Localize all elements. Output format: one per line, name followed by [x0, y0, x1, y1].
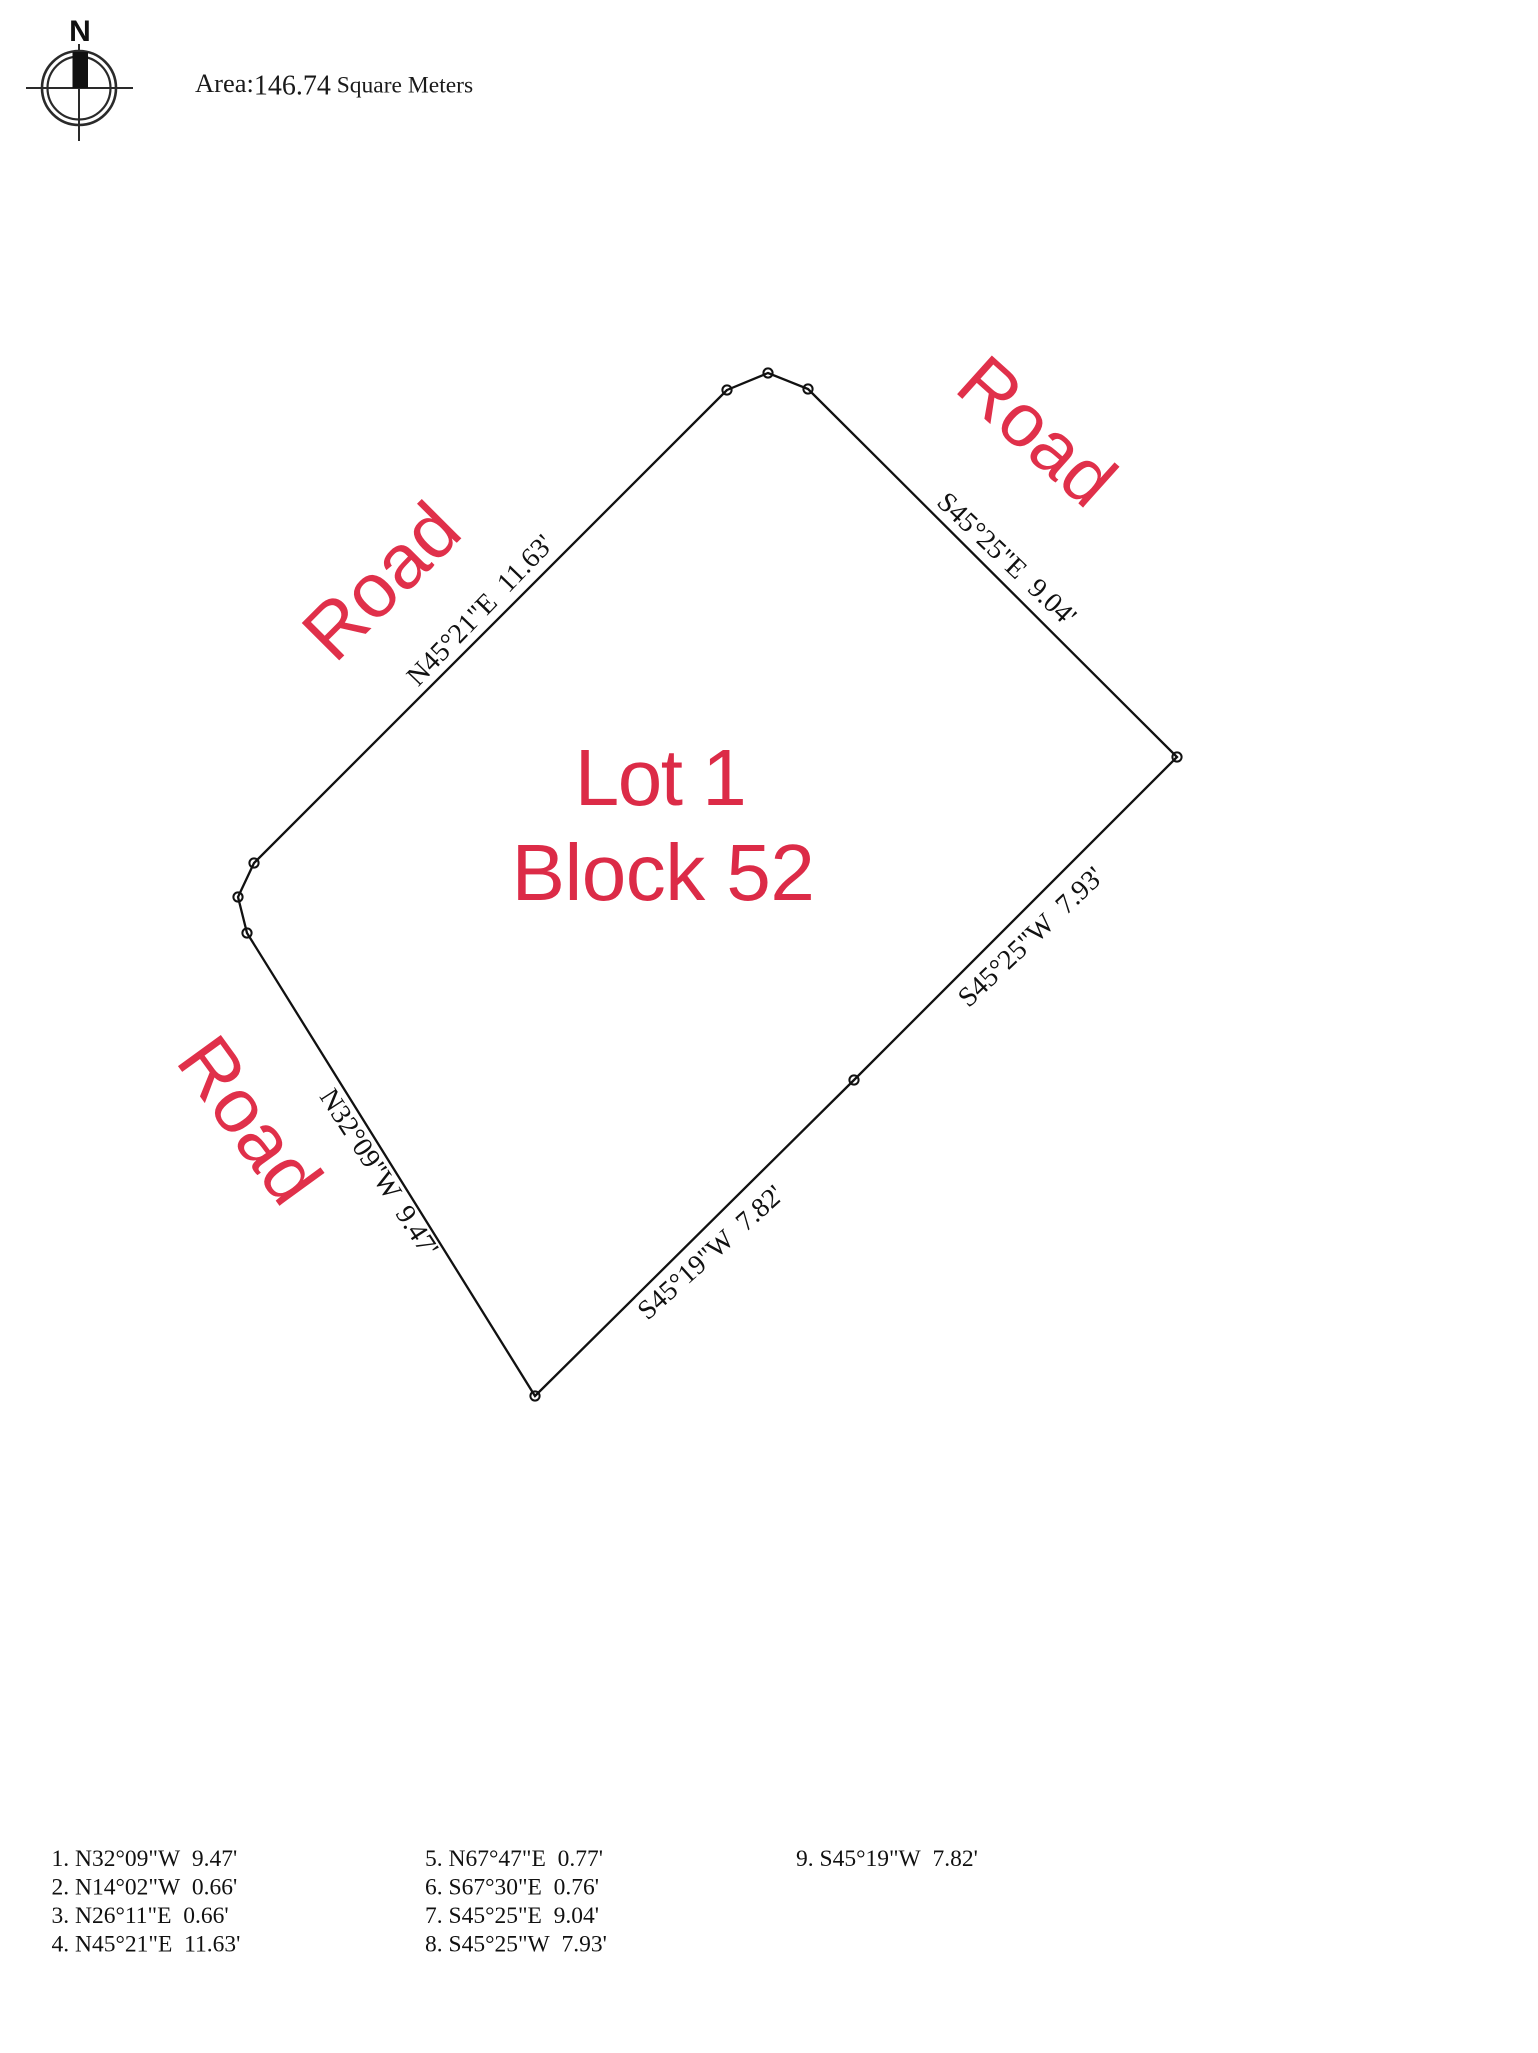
svg-text:2. N14°02"W 0.66': 2. N14°02"W 0.66': [52, 1875, 238, 1901]
svg-text:S45°19"W 7.82': S45°19"W 7.82': [631, 1178, 789, 1325]
svg-text:Lot 1: Lot 1: [575, 733, 745, 822]
svg-text:7. S45°25"E 9.04': 7. S45°25"E 9.04': [425, 1903, 599, 1929]
svg-text:9. S45°19"W 7.82': 9. S45°19"W 7.82': [796, 1846, 978, 1872]
svg-text:Block 52: Block 52: [512, 828, 815, 917]
svg-text:4. N45°21"E 11.63': 4. N45°21"E 11.63': [52, 1932, 241, 1958]
svg-text:1. N32°09"W 9.47': 1. N32°09"W 9.47': [52, 1846, 238, 1872]
svg-text:5. N67°47"E 0.77': 5. N67°47"E 0.77': [425, 1846, 603, 1872]
svg-text:S45°25"E 9.04': S45°25"E 9.04': [931, 486, 1082, 632]
svg-text:Road: Road: [942, 340, 1132, 523]
svg-text:6. S67°30"E 0.76': 6. S67°30"E 0.76': [425, 1875, 599, 1901]
svg-text:Road: Road: [160, 1020, 338, 1219]
svg-text:S45°25"W 7.93': S45°25"W 7.93': [952, 861, 1110, 1013]
svg-text:8. S45°25"W 7.93': 8. S45°25"W 7.93': [425, 1932, 607, 1958]
svg-text:Area:146.74 Square Meters: Area:146.74 Square Meters: [195, 68, 473, 102]
svg-text:3. N26°11"E 0.66': 3. N26°11"E 0.66': [52, 1903, 229, 1929]
svg-text:N: N: [69, 15, 91, 48]
